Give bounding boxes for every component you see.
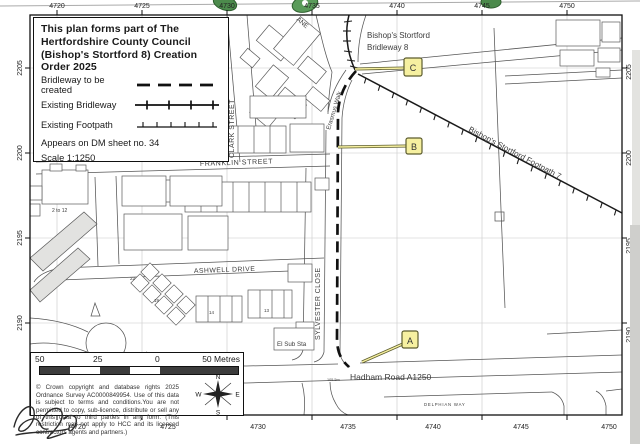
scalebar-label-50-metres: 50 Metres — [202, 354, 240, 364]
easting-label-bottom: 4730 — [250, 424, 266, 431]
dashed-line-symbol — [135, 80, 221, 90]
scanned-plan-page: C B A CLARK STREET FRANKLIN STREET ASHWE… — [0, 0, 640, 444]
scalebar-label-50-left: 50 — [35, 354, 44, 364]
route-label-bridleway-8-line1: Bishop's Stortford — [367, 31, 430, 40]
easting-label-top: 4745 — [474, 3, 490, 10]
street-label-clark-street: CLARK STREET — [229, 99, 236, 158]
street-label-ashwell-drive: ASHWELL DRIVE — [194, 266, 256, 275]
poi-label-el-sub-sta: El Sub Sta — [277, 341, 307, 348]
legend-box: This plan forms part of The Hertfordshir… — [33, 17, 229, 162]
existing-bridleway-8-line — [347, 15, 355, 70]
house-number-14: 14 — [209, 310, 215, 315]
compass-e: E — [235, 392, 240, 399]
scalebar-label-25: 25 — [93, 354, 102, 364]
northing-label-left: 2195 — [17, 230, 24, 246]
easting-label-top: 4735 — [304, 3, 320, 10]
street-label-sylvester-close: SYLVESTER CLOSE — [315, 268, 322, 340]
compass-s: S — [216, 410, 221, 416]
marker-b-letter: B — [411, 142, 417, 152]
northing-label-left: 2200 — [17, 145, 24, 161]
compass-rose: N S W E — [195, 373, 241, 415]
house-range-label: 2 to 12 — [52, 208, 68, 214]
marker-c-letter: C — [410, 63, 417, 73]
easting-label-top: 4730 — [219, 3, 235, 10]
marker-a-letter: A — [407, 336, 413, 346]
easting-label-top: 4720 — [49, 3, 65, 10]
easting-label-top: 4740 — [389, 3, 405, 10]
house-number-22: 22 — [130, 276, 136, 281]
northing-label-left: 2190 — [17, 315, 24, 331]
spot-height-label: 105.5m — [327, 378, 340, 382]
compass-w: W — [195, 392, 202, 399]
road-label-hadham-road: Hadham Road A1250 — [350, 372, 432, 382]
house-number-13: 13 — [264, 308, 270, 313]
legend-item-existing-bridleway: Existing Bridleway — [41, 95, 221, 114]
plan-title: This plan forms part of The Hertfordshir… — [41, 23, 221, 74]
signature-mark — [8, 397, 100, 443]
page-edge-shadow — [630, 225, 640, 444]
legend-item-bridleway-created: Bridleway to be created — [41, 75, 221, 94]
scalebar-label-0: 0 — [155, 354, 160, 364]
route-label-bridleway-8-line2: Bridleway 8 — [367, 43, 409, 52]
ticked-line-symbol — [133, 120, 221, 130]
marker-c: C — [355, 58, 422, 76]
easting-label-bottom: 4750 — [601, 424, 617, 431]
easting-label-bottom: 4740 — [425, 424, 441, 431]
marker-a: A — [362, 331, 418, 362]
dm-sheet-note: Appears on DM sheet no. 34 — [41, 137, 221, 149]
compass-n: N — [216, 374, 221, 381]
scale-note: Scale 1:1250 — [41, 152, 221, 164]
photo-artifacts — [0, 0, 640, 15]
road-label-delphian-way: DELPHIAN WAY — [424, 402, 466, 407]
easting-label-bottom: 4735 — [340, 424, 356, 431]
easting-label-top: 4750 — [559, 3, 575, 10]
legend-item-existing-footpath: Existing Footpath — [41, 115, 221, 134]
page-edge-shadow — [632, 50, 640, 230]
house-number-19: 19 — [154, 298, 160, 303]
existing-bridleway-crosses — [343, 21, 358, 68]
bridleway-to-be-created-line — [337, 71, 356, 367]
northing-label-left: 2205 — [17, 60, 24, 76]
easting-label-bottom: 4745 — [513, 424, 529, 431]
marker-b: B — [338, 138, 422, 154]
easting-label-top: 4725 — [134, 3, 150, 10]
crossed-line-symbol — [133, 99, 221, 111]
